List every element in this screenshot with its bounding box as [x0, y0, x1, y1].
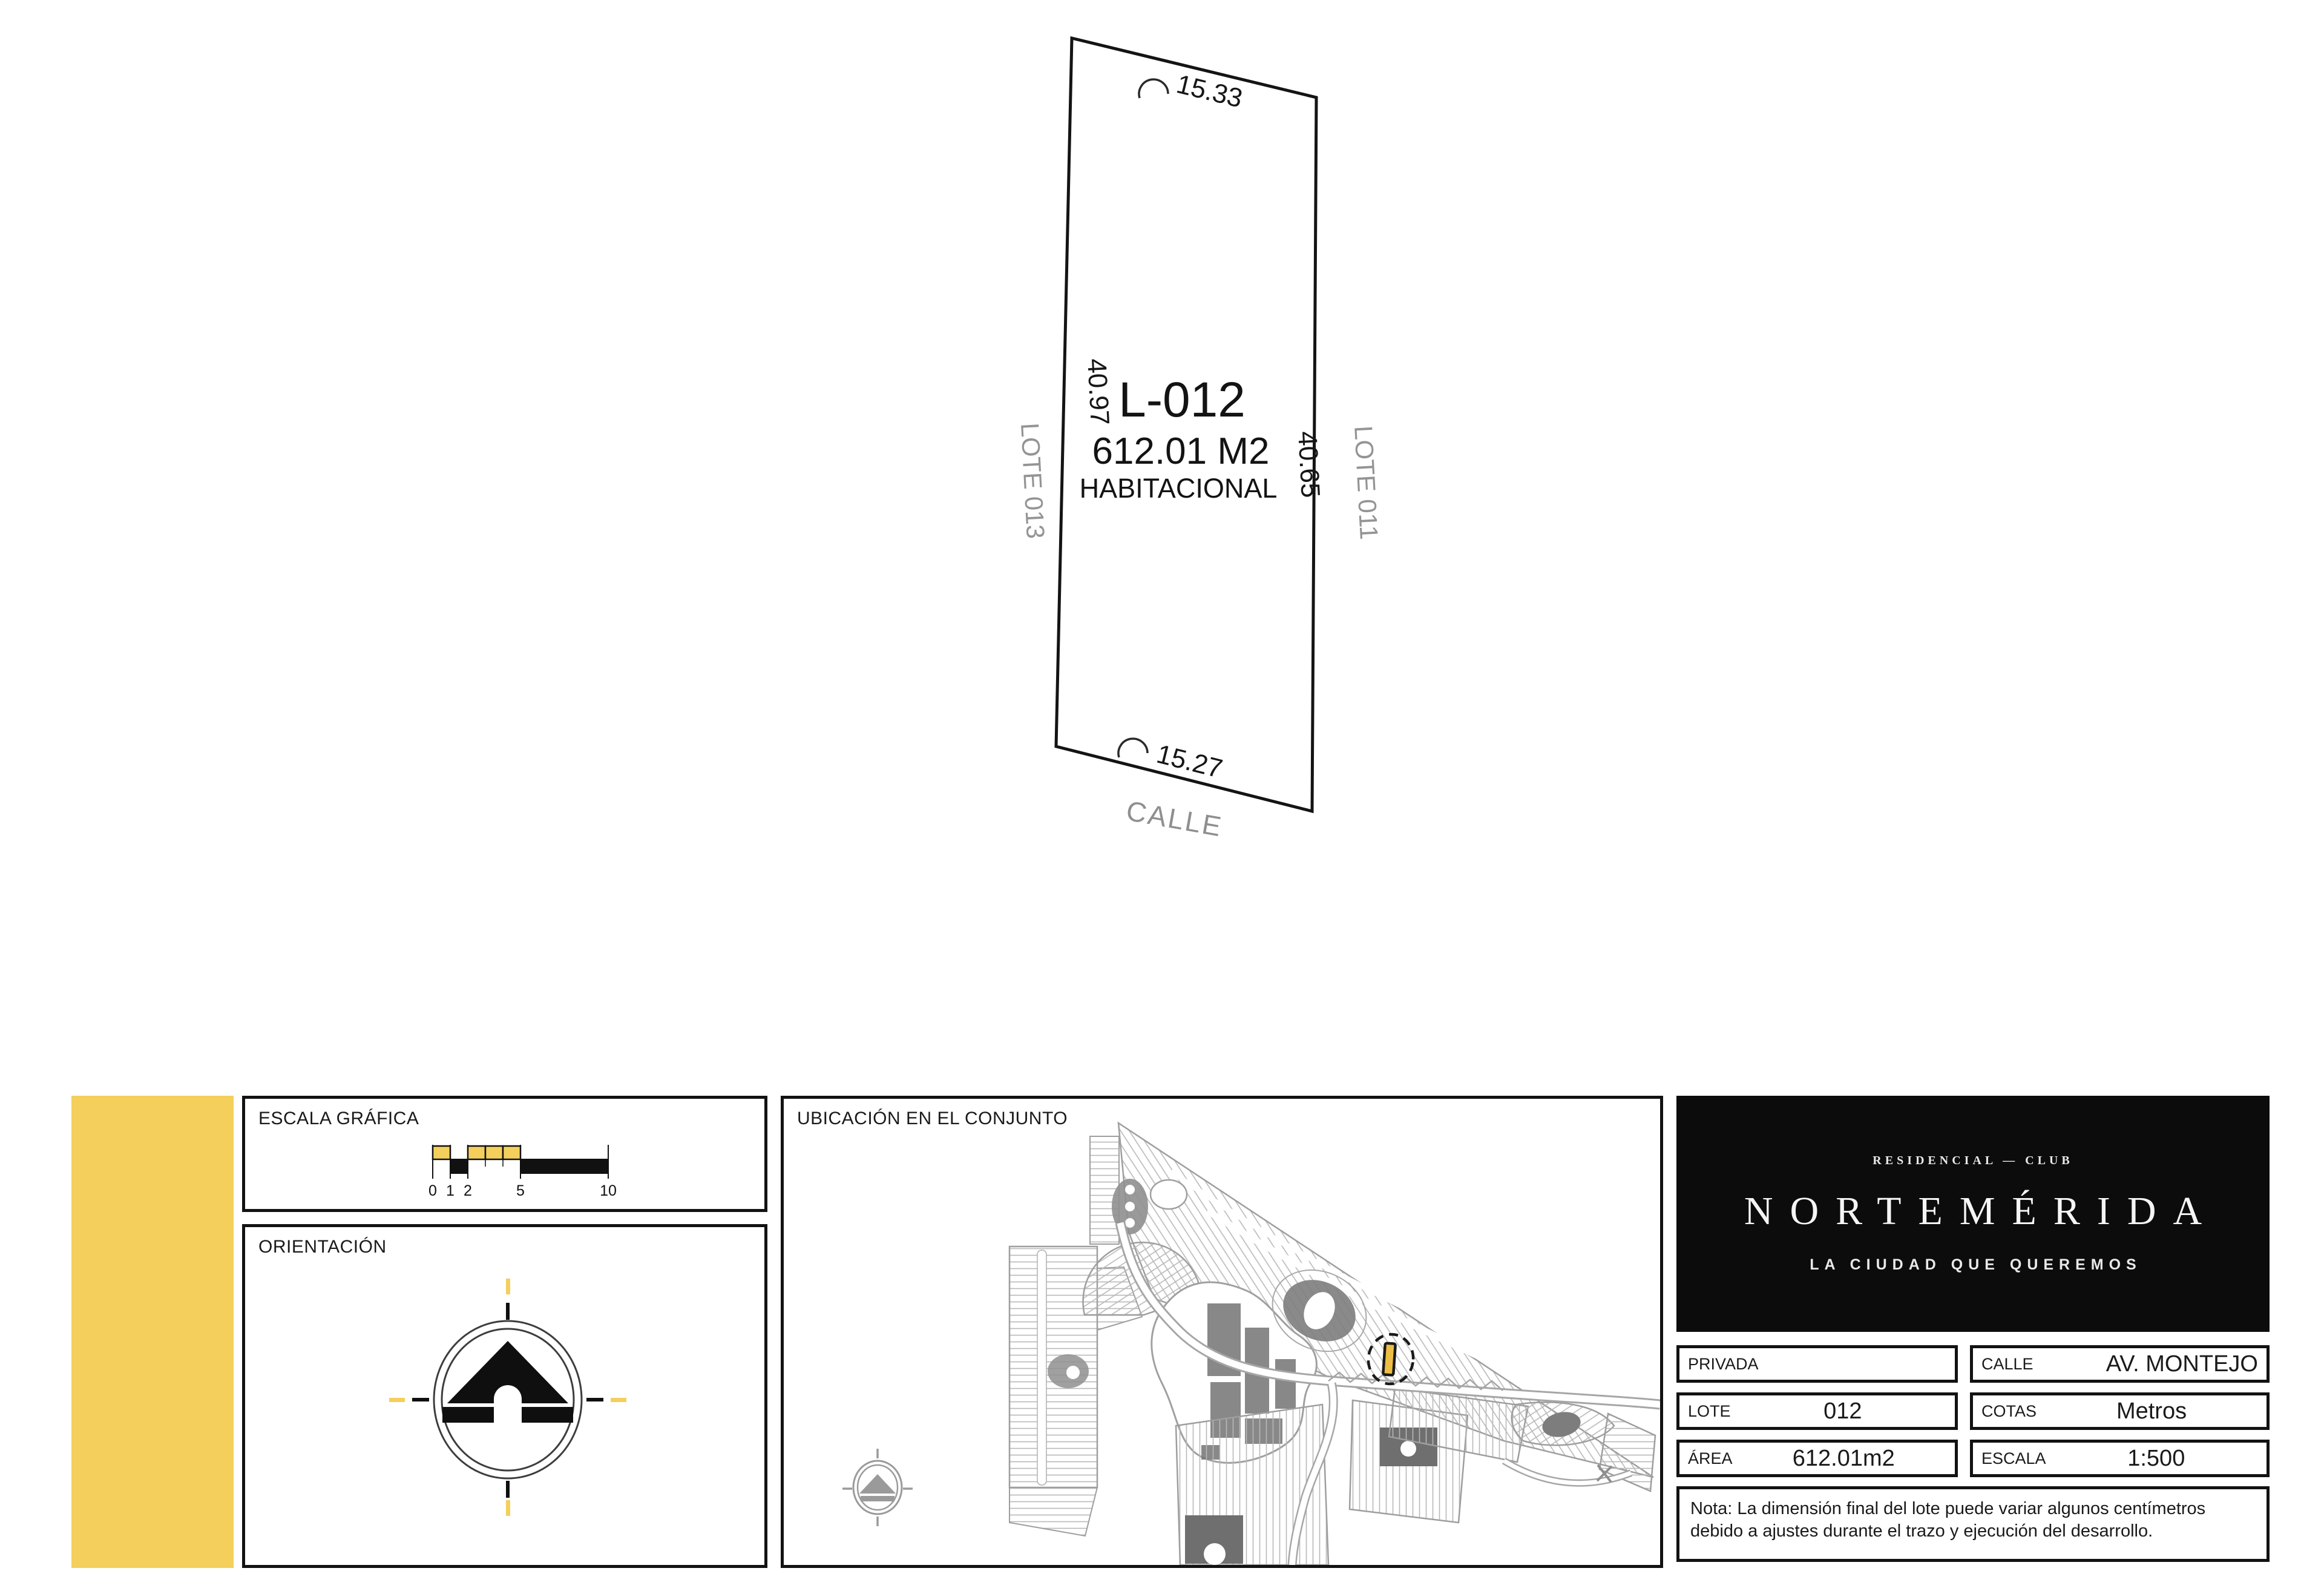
brand-name: NORTEMÉRIDA — [1727, 1188, 2219, 1234]
scale-bar: 0 1 2 5 10 — [245, 1099, 764, 1209]
compass-icon — [245, 1227, 764, 1565]
site-map — [784, 1099, 1660, 1565]
scale-panel: ESCALA GRÁFICA 0 1 2 5 10 — [242, 1096, 767, 1212]
detail-value: 1:500 — [2046, 1446, 2267, 1472]
dim-left-label: 40.97 — [1082, 358, 1115, 426]
scale-tick-label: 10 — [600, 1182, 617, 1199]
mini-compass-icon — [842, 1449, 913, 1526]
detail-label: CALLE — [1973, 1355, 2033, 1374]
detail-label: ÁREA — [1679, 1449, 1733, 1468]
scale-tick-label: 0 — [428, 1182, 437, 1199]
detail-cell-cotas: COTAS Metros — [1970, 1392, 2270, 1430]
detail-cell-area: ÁREA 612.01m2 — [1676, 1440, 1958, 1477]
neighbor-right-label: LOTE 011 — [1349, 425, 1384, 541]
orientation-panel: ORIENTACIÓN — [242, 1224, 767, 1568]
detail-cell-escala: ESCALA 1:500 — [1970, 1440, 2270, 1477]
detail-value: Metros — [2037, 1398, 2267, 1424]
detail-value: AV. MONTEJO — [2033, 1351, 2267, 1377]
note-box: Nota: La dimensión final del lote puede … — [1676, 1486, 2270, 1562]
detail-label: PRIVADA — [1679, 1355, 1759, 1374]
yellow-accent-bar — [71, 1096, 234, 1568]
location-panel: UBICACIÓN EN EL CONJUNTO — [781, 1096, 1663, 1568]
detail-cell-calle: CALLE AV. MONTEJO — [1970, 1345, 2270, 1383]
detail-label: COTAS — [1973, 1402, 2037, 1421]
dim-right-label: 40.65 — [1292, 430, 1325, 499]
lot-use-label: HABITACIONAL — [1080, 473, 1278, 504]
street-label: CALLE — [1124, 795, 1225, 843]
detail-value: 612.01m2 — [1733, 1446, 1955, 1472]
detail-value: 012 — [1731, 1398, 1955, 1424]
note-text: Nota: La dimensión final del lote puede … — [1690, 1499, 2205, 1541]
scale-tick-label: 2 — [464, 1182, 472, 1199]
scale-tick-label: 1 — [446, 1182, 455, 1199]
detail-label: ESCALA — [1973, 1449, 2046, 1468]
brand-tagline: LA CIUDAD QUE QUEREMOS — [1804, 1256, 2141, 1274]
plan-sheet: 15.33 15.27 40.97 40.65 LOTE 013 LOTE 01… — [0, 0, 2324, 1571]
scale-tick-label: 5 — [516, 1182, 525, 1199]
brand-residencial-club: RESIDENCIAL — CLUB — [1873, 1154, 2073, 1168]
lot-id-label: L-012 — [1118, 372, 1246, 427]
detail-cell-privada: PRIVADA — [1676, 1345, 1958, 1383]
detail-cell-lote: LOTE 012 — [1676, 1392, 1958, 1430]
neighbor-left-label: LOTE 013 — [1016, 422, 1050, 539]
detail-label: LOTE — [1679, 1402, 1731, 1421]
brand-panel: RESIDENCIAL — CLUB NORTEMÉRIDA LA CIUDAD… — [1676, 1096, 2270, 1332]
lot-area-label: 612.01 M2 — [1092, 430, 1270, 472]
